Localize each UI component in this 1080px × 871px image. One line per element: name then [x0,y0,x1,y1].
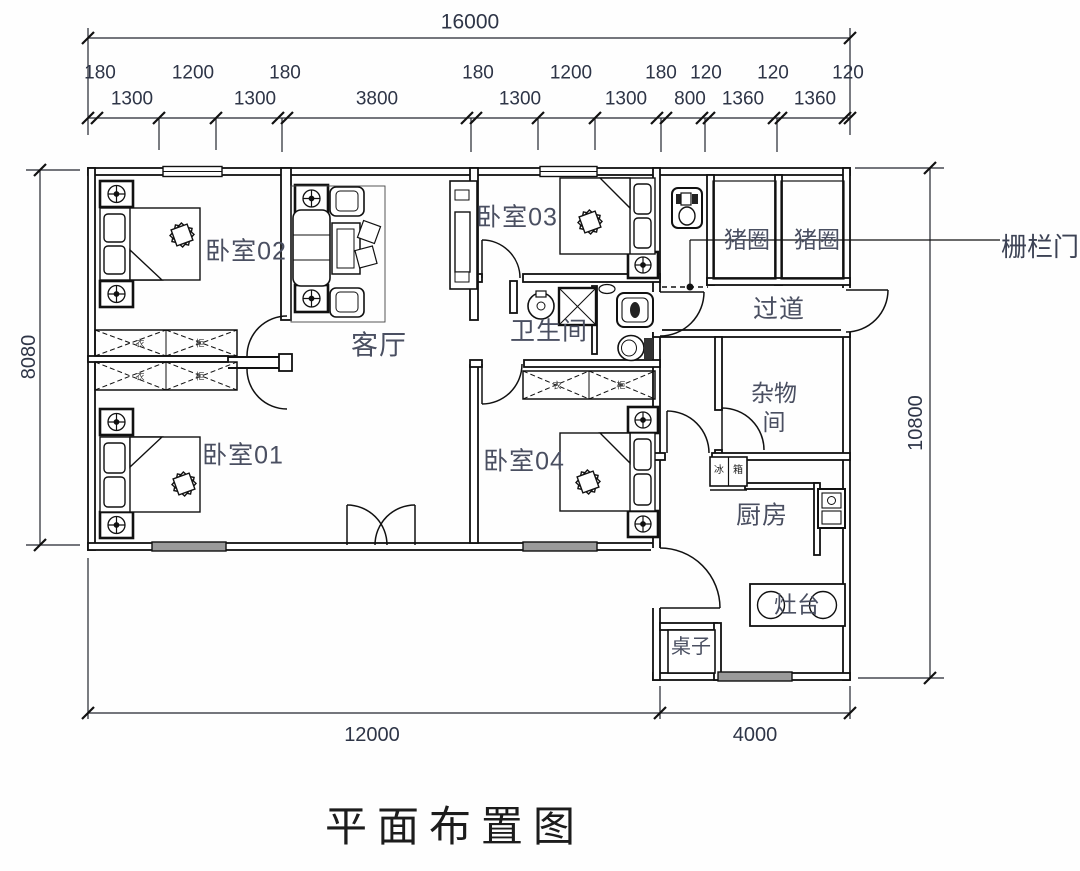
room-label-bedroom4: 卧室04 [483,450,565,475]
wardrobe2-char-1: 衣 [135,340,144,349]
wardrobe1-char-2: 柜 [195,373,204,382]
room-label-corridor: 过道 [753,298,805,323]
room-label-storage-line1: 杂物 [751,379,797,408]
floorplan-page: 16000 180 1200 180 180 1200 180 120 120 … [0,0,1080,871]
bed-bedroom3 [560,178,655,254]
dim-top-lower-6: 800 [674,90,706,109]
dim-top-upper-1: 180 [84,64,116,83]
drawing-title: 平面布置图 [325,806,585,848]
dim-top-upper-5: 1200 [550,64,592,83]
dim-top-upper-9: 120 [832,64,864,83]
bed-bedroom2 [100,208,200,280]
dim-top-upper-6: 180 [645,64,677,83]
kitchen-sink [818,489,845,528]
room-label-pigpen2: 猪圈 [794,229,840,252]
room-label-kitchen: 厨房 [736,504,788,529]
outdoor-toilet-fixture [672,188,702,228]
fixture-label-table: 桌子 [671,637,711,657]
room-label-bathroom: 卫生间 [510,320,588,345]
dim-top-lower-5: 1300 [605,90,647,109]
dim-top-upper-8: 120 [757,64,789,83]
dim-top-upper-7: 120 [690,64,722,83]
dim-bottom-left: 12000 [344,725,400,745]
dim-top-total: 16000 [441,12,499,33]
room-label-storage-line2: 间 [751,408,797,437]
wardrobe2-char-2: 柜 [195,340,204,349]
dim-left-height: 8080 [19,335,39,380]
dim-top-lower-3: 3800 [356,90,398,109]
dim-top-lower-8: 1360 [794,90,836,109]
dim-top-lower-1: 1300 [111,90,153,109]
fence-gate-label: 栅栏门 [1001,234,1079,260]
dim-top-lower-2: 1300 [234,90,276,109]
room-label-bedroom2: 卧室02 [205,240,287,265]
room-label-living: 客厅 [351,333,407,360]
room-label-bedroom3: 卧室03 [476,206,558,231]
dim-top-lower-4: 1300 [499,90,541,109]
room-label-pigpen1: 猪圈 [724,229,770,252]
dim-bottom-right: 4000 [733,725,778,745]
wardrobe1-char-1: 衣 [135,373,144,382]
bed-bedroom1 [100,437,200,512]
room-label-storage: 杂物 间 [751,379,797,437]
wardrobe4-char-2: 柜 [616,382,625,391]
dim-top-upper-3: 180 [269,64,301,83]
tv-stand [450,181,477,289]
fridge-char-1: 冰 [714,466,724,476]
fridge-char-2: 箱 [733,466,743,476]
room-label-bedroom1: 卧室01 [202,444,284,469]
fixture-label-stove: 灶台 [774,594,820,617]
bed-bedroom4 [560,433,655,511]
wardrobe4-char-1: 衣 [552,382,561,391]
dim-right-height: 10800 [906,395,926,451]
dim-top-upper-2: 1200 [172,64,214,83]
dim-top-lower-7: 1360 [722,90,764,109]
dim-top-upper-4: 180 [462,64,494,83]
